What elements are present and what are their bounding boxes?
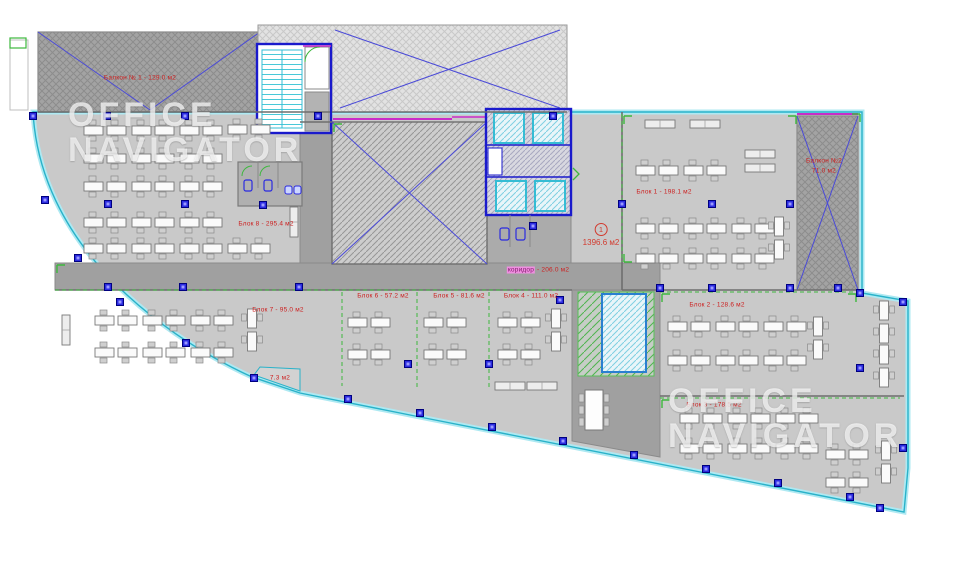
cabinet bbox=[645, 120, 675, 128]
elevator-4 bbox=[535, 181, 565, 211]
sink-icon bbox=[285, 186, 292, 194]
elevator-2 bbox=[533, 113, 563, 143]
cabinet bbox=[290, 207, 298, 237]
desk-cluster bbox=[95, 310, 137, 331]
elevator-3 bbox=[496, 181, 526, 211]
exterior-edge-left bbox=[10, 38, 28, 110]
cabinet bbox=[690, 120, 720, 128]
cabinet bbox=[745, 150, 775, 158]
elevator-core bbox=[486, 109, 579, 215]
wc-left-room bbox=[238, 162, 302, 206]
sink-icon bbox=[294, 186, 301, 194]
balcony-2-area bbox=[797, 116, 858, 290]
cabinet bbox=[745, 164, 775, 172]
cabinet bbox=[495, 382, 525, 390]
floor-plan: Балкон № 1 - 129.0 м2 Балкон №2 71.0 м2 … bbox=[0, 0, 975, 571]
cabinet bbox=[527, 382, 557, 390]
desk-cluster bbox=[95, 342, 137, 363]
cabinet bbox=[62, 315, 70, 345]
balcony-1-area bbox=[38, 32, 260, 112]
desk-cluster bbox=[143, 342, 185, 363]
elevator-1 bbox=[494, 113, 524, 143]
meeting-table bbox=[579, 390, 609, 430]
plan-drawing bbox=[0, 0, 975, 571]
service-strip bbox=[578, 292, 654, 376]
central-shaft-area bbox=[332, 117, 487, 264]
